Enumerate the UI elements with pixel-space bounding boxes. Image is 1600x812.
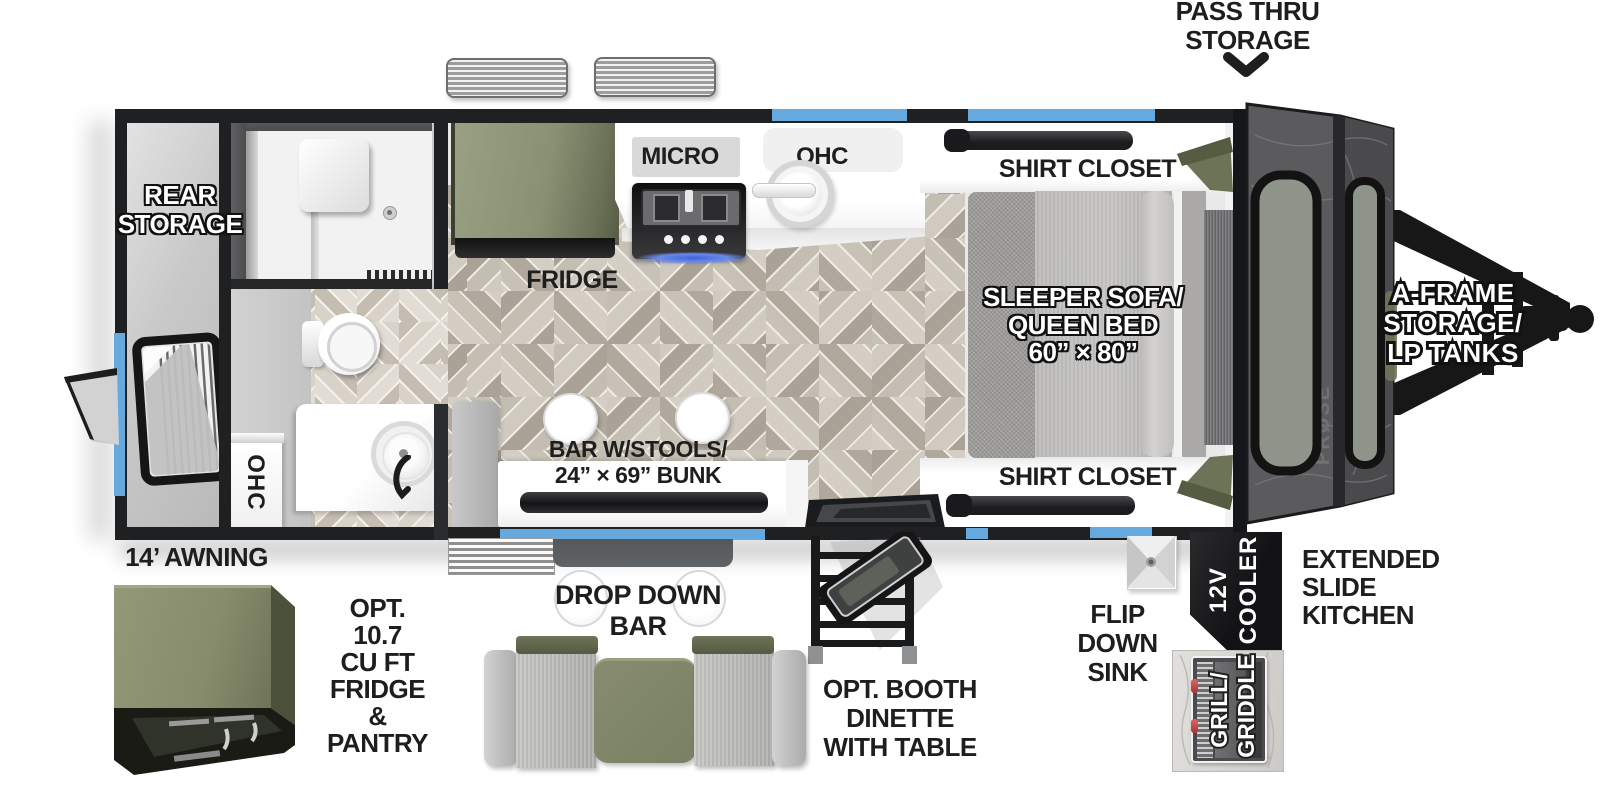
- svg-text:LP TANKS: LP TANKS: [1387, 338, 1519, 368]
- svg-text:STORAGE/: STORAGE/: [1383, 308, 1522, 338]
- svg-text:A-FRAME: A-FRAME: [1391, 278, 1514, 308]
- svg-text:GRILL/: GRILL/: [1206, 672, 1232, 748]
- svg-text:GRIDDLE: GRIDDLE: [1233, 654, 1259, 758]
- svg-text:COOLER: COOLER: [1235, 536, 1262, 645]
- svg-text:12V: 12V: [1205, 567, 1232, 613]
